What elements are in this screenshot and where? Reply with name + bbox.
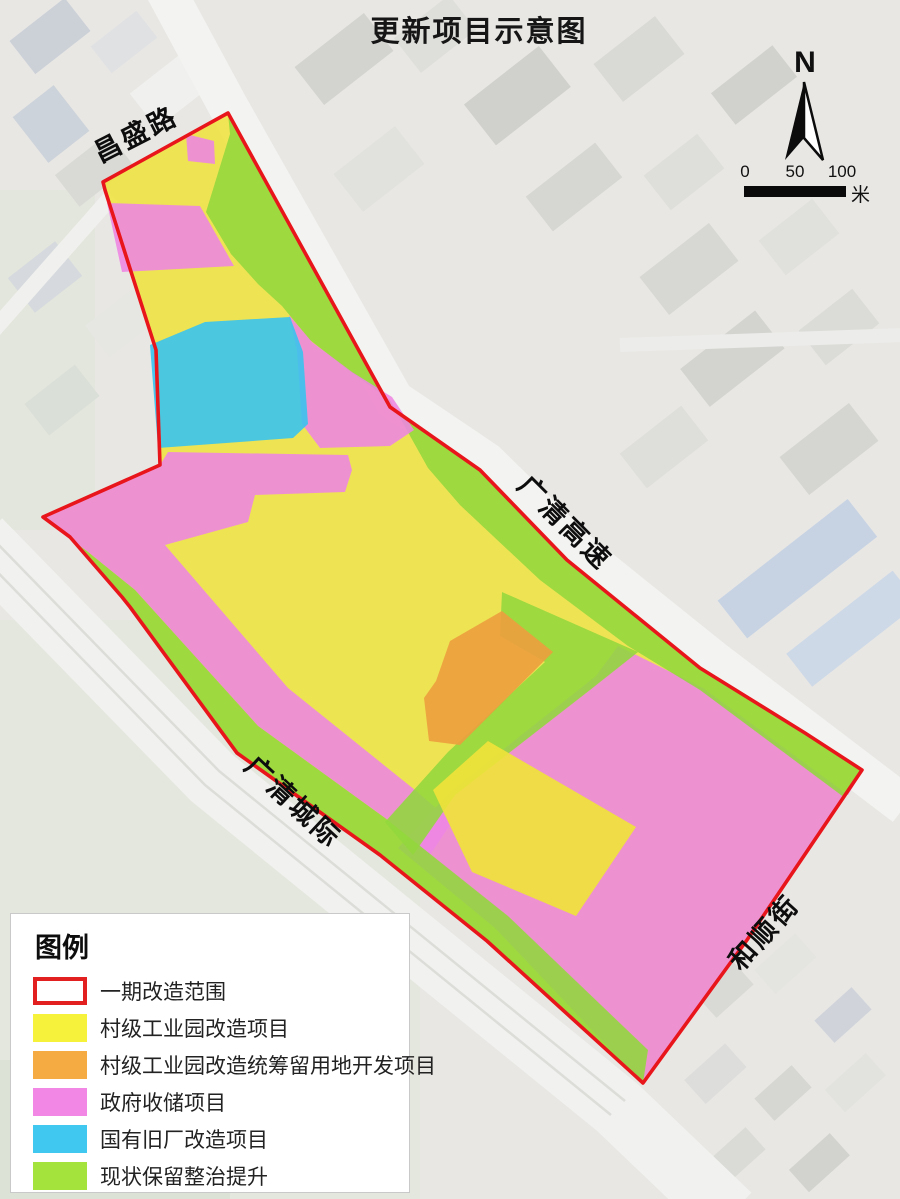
- legend-item-state-owned-factory: 国有旧厂改造项目: [33, 1125, 399, 1153]
- scale-bar: 0 50 100 米: [732, 162, 882, 182]
- north-label: N: [770, 48, 840, 78]
- scale-ticks: 0 50 100: [732, 162, 882, 182]
- legend-swatch-state-owned-factory: [33, 1125, 87, 1153]
- legend-item-phase1-boundary: 一期改造范围: [33, 977, 399, 1005]
- scale-tick-50: 50: [786, 162, 805, 182]
- legend-label: 国有旧厂改造项目: [100, 1124, 268, 1154]
- zone-state-owned-factory-renewal: [150, 317, 308, 448]
- north-arrow-icon: [770, 78, 840, 168]
- legend-label: 现状保留整治提升: [100, 1161, 268, 1191]
- scale-unit: 米: [851, 180, 870, 207]
- legend-panel: 图例 一期改造范围 村级工业园改造项目 村级工业园改造统筹留用地开发项目 政府收…: [10, 913, 410, 1193]
- legend-label: 一期改造范围: [100, 976, 226, 1006]
- legend-swatch-village-industrial: [33, 1014, 87, 1042]
- legend-swatch-phase1-boundary: [33, 977, 87, 1005]
- legend-swatch-government-storage: [33, 1088, 87, 1116]
- legend-title: 图例: [35, 926, 399, 965]
- legend-swatch-retain-improve: [33, 1162, 87, 1190]
- compass: N: [770, 48, 840, 173]
- legend-item-retain-improve: 现状保留整治提升: [33, 1162, 399, 1190]
- legend-swatch-reserved-land: [33, 1051, 87, 1079]
- scale-tick-0: 0: [740, 162, 749, 182]
- scale-bar-line: [744, 186, 846, 197]
- legend-label: 政府收储项目: [100, 1087, 226, 1117]
- legend-label: 村级工业园改造项目: [100, 1013, 289, 1043]
- legend-item-village-industrial: 村级工业园改造项目: [33, 1014, 399, 1042]
- scale-tick-100: 100: [828, 162, 856, 182]
- legend-label: 村级工业园改造统筹留用地开发项目: [100, 1050, 436, 1080]
- renewal-project-map-page: 昌盛路 广清高速 广清城际 和顺街 更新项目示意图 N 0 50 100 米 图…: [0, 0, 900, 1199]
- page-title: 更新项目示意图: [0, 8, 900, 50]
- legend-item-reserved-land: 村级工业园改造统筹留用地开发项目: [33, 1051, 399, 1079]
- legend-item-government-storage: 政府收储项目: [33, 1088, 399, 1116]
